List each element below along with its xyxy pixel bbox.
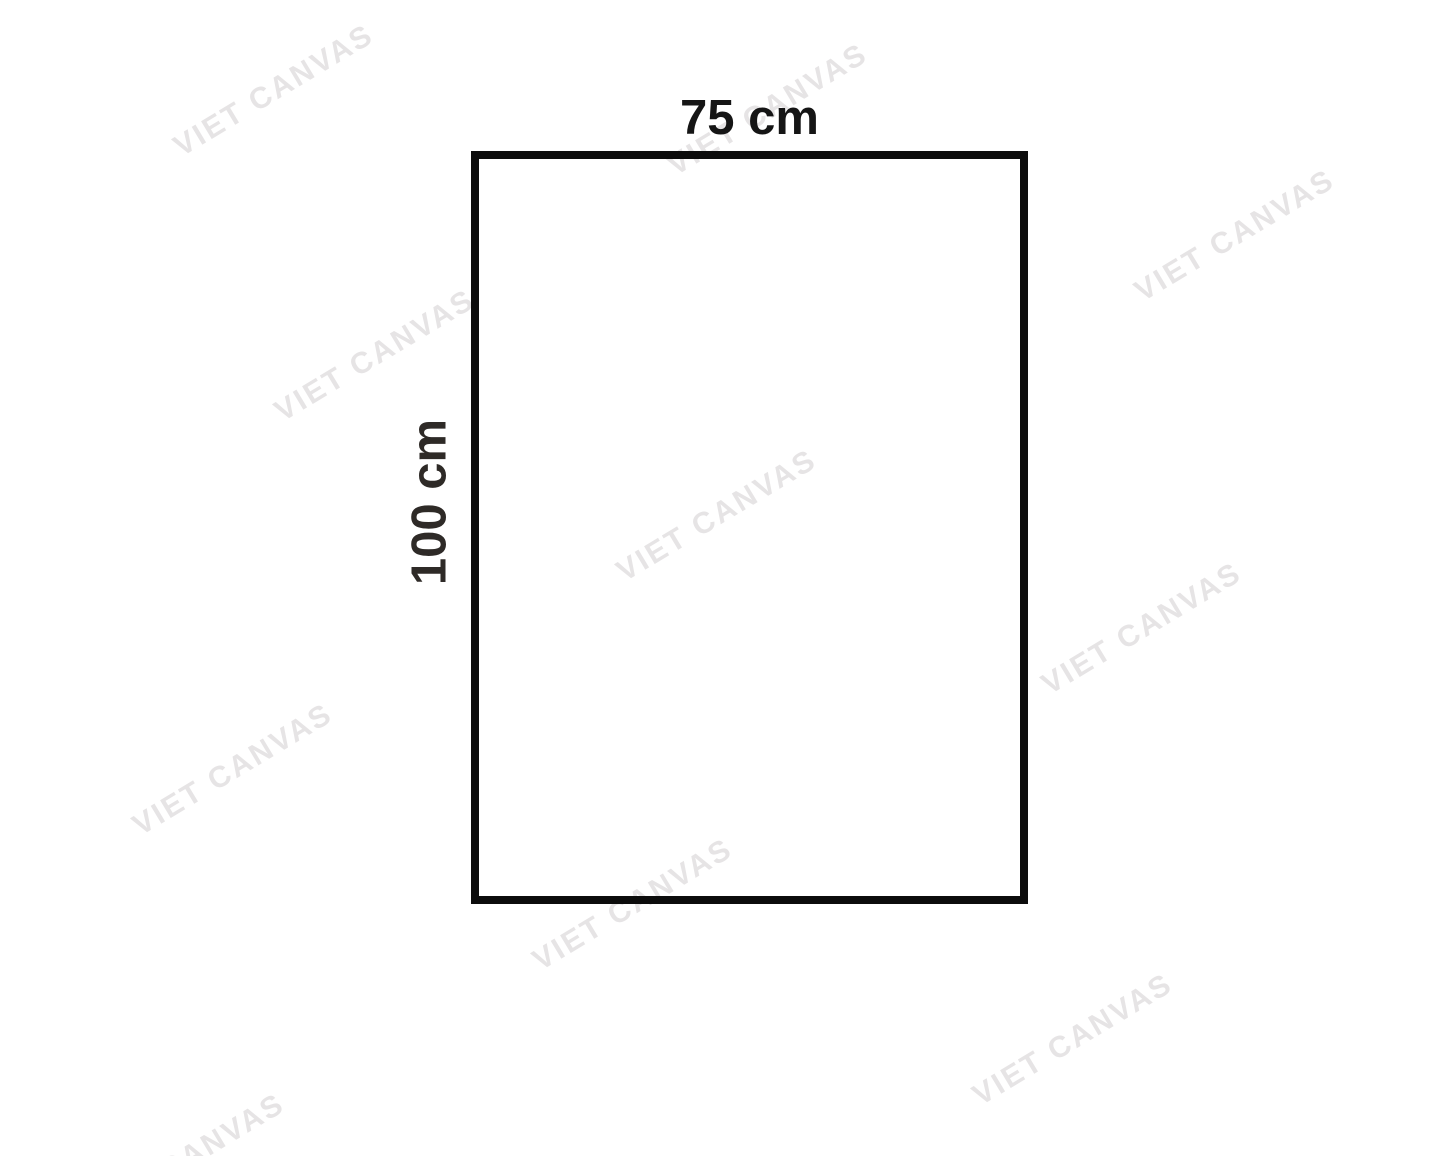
dimension-diagram: VIET CANVAS VIET CANVAS VIET CANVAS VIET…: [0, 0, 1445, 1156]
watermark-text: VIET CANVAS: [269, 283, 481, 429]
watermark-text: VIET CANVAS: [79, 1087, 291, 1156]
watermark-text: VIET CANVAS: [1036, 556, 1248, 702]
watermark-text: VIET CANVAS: [168, 18, 380, 164]
watermark-text: VIET CANVAS: [127, 697, 339, 843]
canvas-outline: [471, 151, 1028, 904]
height-label: 100 cm: [406, 419, 455, 585]
watermark-text: VIET CANVAS: [1129, 163, 1341, 309]
watermark-text: VIET CANVAS: [967, 967, 1179, 1113]
width-label: 75 cm: [471, 94, 1028, 143]
